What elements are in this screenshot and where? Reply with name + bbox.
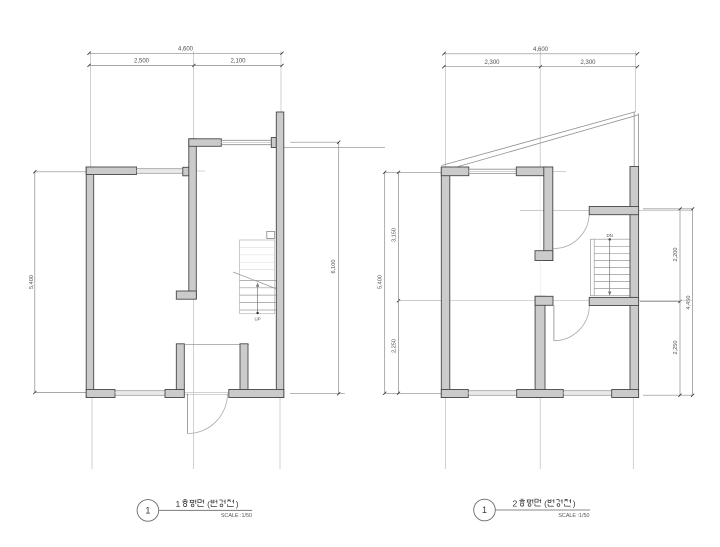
- svg-text:(: (: [544, 499, 547, 509]
- svg-text:UP: UP: [255, 317, 261, 322]
- svg-text:2,300: 2,300: [484, 60, 500, 66]
- svg-text:6,100: 6,100: [331, 260, 337, 274]
- svg-text:5,400: 5,400: [29, 275, 35, 289]
- svg-text:2,500: 2,500: [134, 59, 150, 65]
- svg-text:): ): [236, 499, 239, 509]
- svg-text:SCALE :1/50: SCALE :1/50: [558, 513, 589, 519]
- svg-text:2,250: 2,250: [673, 341, 679, 355]
- svg-text:1: 1: [482, 505, 487, 515]
- svg-text:5,400: 5,400: [378, 275, 384, 289]
- svg-text:4,600: 4,600: [178, 47, 194, 53]
- svg-text:2,250: 2,250: [392, 339, 398, 353]
- svg-text:SCALE :1/50: SCALE :1/50: [221, 513, 252, 519]
- svg-text:4,600: 4,600: [533, 47, 549, 53]
- svg-text:1: 1: [145, 506, 150, 516]
- svg-text:2,100: 2,100: [230, 59, 246, 65]
- svg-text:DN: DN: [607, 233, 613, 238]
- svg-text:2,200: 2,200: [673, 248, 679, 262]
- svg-text:(: (: [207, 499, 210, 509]
- svg-text:1: 1: [176, 499, 181, 509]
- svg-text:2: 2: [513, 498, 518, 508]
- svg-text:): ): [573, 499, 576, 509]
- svg-text:4,450: 4,450: [686, 296, 692, 310]
- svg-text:3,150: 3,150: [392, 228, 398, 242]
- svg-text:2,300: 2,300: [580, 60, 596, 66]
